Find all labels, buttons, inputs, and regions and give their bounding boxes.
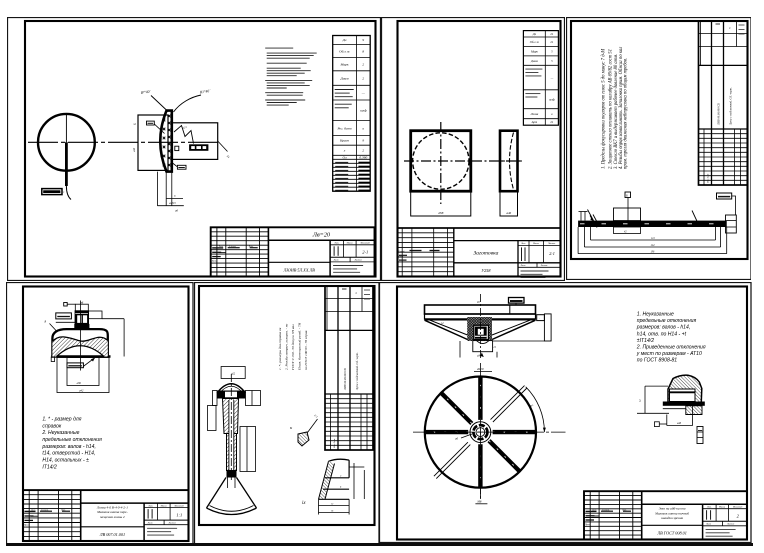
svg-text:шлф: шлф: [549, 98, 556, 102]
svg-text:2: 2: [362, 76, 364, 80]
svg-text:Лупа с подсветкой. Сб. черт.: Лупа с подсветкой. Сб. черт.: [354, 351, 359, 390]
svg-text:предельные отклонения: предельные отклонения: [42, 437, 102, 443]
svg-text:Листов: Листов: [168, 522, 176, 524]
svg-text:Лист: Лист: [591, 509, 597, 511]
svg-text:Масса: Масса: [718, 506, 726, 508]
svg-text:ЛЮИВ 5Л.ХХ.ЛВ: ЛЮИВ 5Л.ХХ.ЛВ: [283, 267, 316, 272]
svg-text:h14, отв. по Н14 - +t: h14, отв. по Н14 - +t: [637, 331, 687, 337]
svg-text:⌀36: ⌀36: [77, 381, 82, 384]
svg-text:Линза 4-й В-4-0-4-2-1: Линза 4-й В-4-0-4-2-1: [96, 504, 128, 509]
svg-text:по ГОСТ 100 93 - 70 справ.: по ГОСТ 100 93 - 70 справ.: [303, 329, 307, 369]
svg-text:прим. трелля движения небтрус: прим. трелля движения небтрусовка по общ…: [623, 58, 628, 169]
svg-text:Масштаб: Масштаб: [732, 505, 743, 508]
svg-text:Лит.: Лит.: [333, 243, 339, 245]
svg-text:Плшк. болт круглый резьб. - 7Н: Плшк. болт круглый резьб. - 7Н: [296, 322, 301, 371]
svg-text:21: 21: [550, 32, 554, 36]
svg-text:предельные отклонения: предельные отклонения: [637, 318, 697, 324]
svg-text:у мест по размерам - АТ10: у мест по размерам - АТ10: [636, 351, 702, 357]
svg-text:ГОСТ 9 150 - 59 допуск 7Н вал: ГОСТ 9 150 - 59 допуск 7Н вал: [290, 323, 294, 370]
svg-text:⌀42: ⌀42: [79, 389, 84, 392]
svg-text:Марк: Марк: [339, 63, 348, 67]
svg-text:Подп.: Подп.: [60, 508, 66, 511]
svg-text:N: N: [355, 292, 358, 295]
svg-text:21: 21: [550, 40, 554, 44]
svg-text:ЛВ 007.01.001: ЛВ 007.01.001: [99, 531, 125, 536]
svg-text:2. Резьба метрич. ускорен. - п: 2. Резьба метрич. ускорен. - по: [284, 323, 288, 369]
svg-text:Подп.: Подп.: [248, 245, 254, 248]
svg-text:Маховик винта пере-: Маховик винта пере-: [96, 510, 128, 514]
svg-text:2-1: 2-1: [362, 250, 368, 255]
svg-text:Пров.: Пров.: [584, 524, 590, 526]
svg-text:2. Защитное стекло отливать по: 2. Защитное стекло отливать по калибру А…: [608, 49, 613, 169]
svg-text:Лупа с подсветкой. Сб. черт.: Лупа с подсветкой. Сб. черт.: [727, 87, 732, 126]
svg-text:0.380: 0.380: [359, 156, 367, 160]
svg-text:Лв=20: Лв=20: [312, 231, 331, 238]
svg-text:Пров.: Пров.: [398, 256, 404, 258]
svg-text:Красн: Красн: [339, 139, 349, 143]
svg-text:Листов: Листов: [540, 265, 548, 267]
svg-text:9: 9: [362, 38, 364, 42]
svg-text:Подп.: Подп.: [621, 508, 627, 511]
svg-text:Лист: Лист: [333, 260, 340, 262]
svg-text:Лист: Лист: [147, 522, 154, 524]
svg-text:М8: М8: [476, 499, 481, 503]
svg-text:Пров.: Пров.: [23, 524, 29, 526]
svg-text:1:1: 1:1: [176, 512, 182, 517]
svg-text:8: 8: [362, 49, 364, 53]
svg-text:Масштаб: Масштаб: [173, 504, 184, 507]
svg-text:IT14/2: IT14/2: [42, 464, 57, 470]
svg-text:Маховик винта точной: Маховик винта точной: [654, 510, 689, 515]
svg-text:№ докум.: № докум.: [228, 245, 237, 248]
svg-text:Дл: Дл: [342, 38, 347, 42]
svg-text:№ докум.: № докум.: [40, 508, 49, 511]
svg-text:Ол: Ол: [342, 156, 347, 160]
svg-text:шлф: шлф: [360, 109, 367, 113]
svg-text:Линза: Линза: [530, 112, 539, 116]
svg-text:ЛВ ГОСТ 008.01: ЛВ ГОСТ 008.01: [656, 530, 686, 535]
svg-text:Рег. болт: Рег. болт: [336, 126, 352, 130]
svg-text:Листов: Листов: [726, 523, 734, 525]
svg-text:Листов: Листов: [354, 260, 362, 262]
svg-text:Лист: Лист: [218, 246, 224, 248]
svg-text:2. Неуказанные: 2. Неуказанные: [41, 430, 79, 436]
svg-text:Масшт.: Масшт.: [547, 243, 556, 245]
svg-text:2:1: 2:1: [549, 251, 555, 256]
svg-text:Масса: Масса: [346, 243, 354, 245]
svg-text:ЛИВ 00.00.000 СБ: ЛИВ 00.00.000 СБ: [344, 367, 347, 390]
svg-text:Разраб.: Разраб.: [398, 250, 406, 253]
svg-text:±IT14/2: ±IT14/2: [637, 337, 654, 343]
svg-text:Масштаб: Масштаб: [359, 242, 370, 245]
svg-text:размеров: валов - h14,: размеров: валов - h14,: [636, 324, 690, 330]
svg-text:1. * - размер для: 1. * - размер для: [42, 416, 81, 422]
svg-text:Арт: Арт: [531, 120, 538, 124]
svg-text:Диам: Диам: [530, 59, 538, 63]
svg-text:21: 21: [550, 120, 554, 124]
svg-text:У258: У258: [481, 268, 491, 273]
svg-text:Масса: Масса: [532, 243, 539, 245]
svg-text:⌀58: ⌀58: [438, 211, 444, 215]
svg-text:⌀48.3: ⌀48.3: [169, 202, 176, 205]
svg-text:⌀46: ⌀46: [506, 211, 511, 215]
svg-text:Изм. Лист: Изм. Лист: [707, 173, 709, 184]
svg-text:Диам: Диам: [340, 76, 350, 80]
svg-text:Об.л ж: Об.л ж: [339, 49, 351, 53]
svg-text:Это на абб-ка пни: Это на абб-ка пни: [659, 506, 686, 510]
svg-text:N: N: [728, 27, 731, 30]
svg-text:Б: Б: [625, 195, 628, 198]
svg-text:№ докум.: № докум.: [601, 508, 610, 511]
svg-text:Лист: Лист: [30, 509, 36, 511]
svg-text:9: 9: [362, 139, 364, 143]
svg-text:Лит.: Лит.: [706, 506, 712, 508]
svg-text:1. *- размеры для справок вк: 1. *- размеры для справок вк: [277, 327, 281, 370]
svg-text:Лит.: Лит.: [147, 505, 153, 507]
svg-text:Об.л ж: Об.л ж: [530, 40, 539, 44]
svg-text:Лист: Лист: [520, 265, 526, 267]
svg-text:t14, отверстий - Н14,: t14, отверстий - Н14,: [42, 449, 95, 456]
svg-text:наводки зрения: наводки зрения: [661, 515, 683, 519]
svg-text:ЛИВ 00.00.000 СБ: ЛИВ 00.00.000 СБ: [717, 103, 720, 126]
svg-text:1. Неуказанные: 1. Неуказанные: [637, 311, 674, 317]
svg-text:мещения линзы 2: мещения линзы 2: [99, 514, 125, 518]
svg-text:2: 2: [362, 149, 364, 153]
svg-text:Лит.: Лит.: [520, 243, 526, 245]
svg-text:Марк: Марк: [530, 49, 538, 53]
svg-text:Масса: Масса: [160, 505, 168, 507]
svg-text:R: R: [44, 320, 47, 323]
svg-text:2: 2: [362, 63, 364, 67]
svg-text:Лист: Лист: [705, 523, 712, 525]
svg-text:2. Приведенные отклонения: 2. Приведенные отклонения: [636, 344, 706, 350]
svg-text:Дл: Дл: [532, 32, 537, 36]
svg-text:Пров.: Пров.: [211, 261, 217, 263]
svg-text:размеров: валов - h14,: размеров: валов - h14,: [41, 443, 95, 449]
svg-text:справок: справок: [42, 423, 61, 429]
svg-text:1. Пределы фокусировки окуляро: 1. Пределы фокусировки окуляров от плюс …: [601, 48, 606, 169]
svg-text:—: —: [550, 76, 554, 80]
svg-text:⌀45: ⌀45: [133, 147, 136, 152]
svg-text:⌀40: ⌀40: [677, 422, 682, 425]
svg-text:Заготовка: Заготовка: [473, 251, 498, 257]
svg-text:Н14, остальных - ±: Н14, остальных - ±: [42, 457, 89, 463]
svg-text:по ГОСТ 8908-81: по ГОСТ 8908-81: [637, 357, 678, 363]
svg-text:Изм. Лист: Изм. Лист: [334, 438, 336, 449]
